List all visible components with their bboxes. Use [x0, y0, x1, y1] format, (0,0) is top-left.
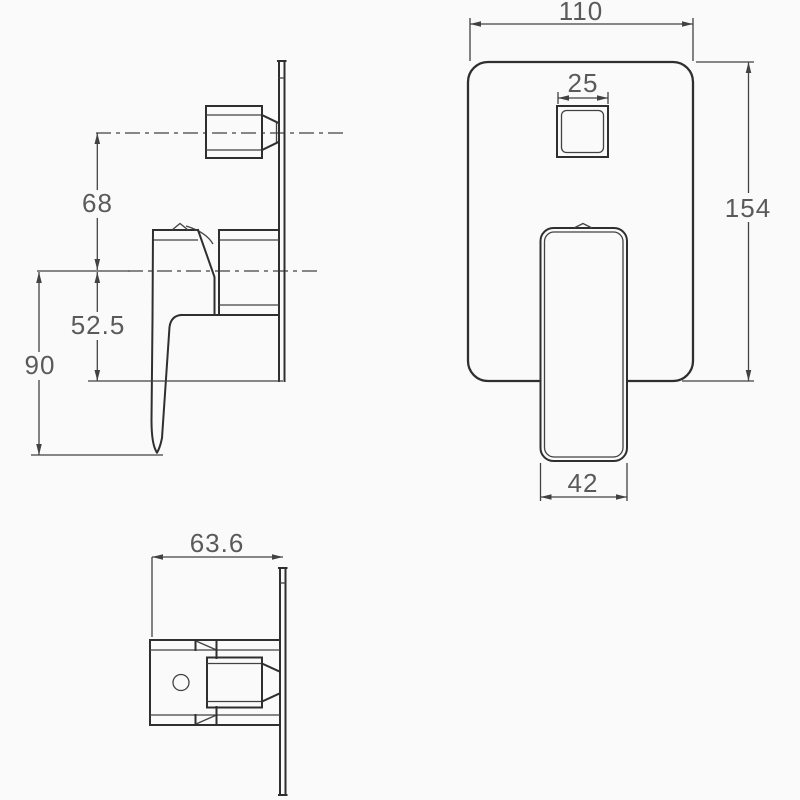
- dim-label-110: 110: [559, 0, 603, 26]
- dim-label-25: 25: [568, 68, 599, 98]
- dim-label-68: 68: [82, 188, 113, 218]
- dim-label-63-6: 63.6: [190, 528, 245, 558]
- dim-label-42: 42: [568, 468, 599, 498]
- drawing-background: [0, 0, 800, 800]
- technical-drawing: 68 52.5 90: [0, 0, 800, 800]
- dim-label-90: 90: [25, 350, 56, 380]
- handle-front: [541, 224, 628, 462]
- dim-label-154: 154: [725, 193, 771, 223]
- dim-label-52-5: 52.5: [71, 310, 126, 340]
